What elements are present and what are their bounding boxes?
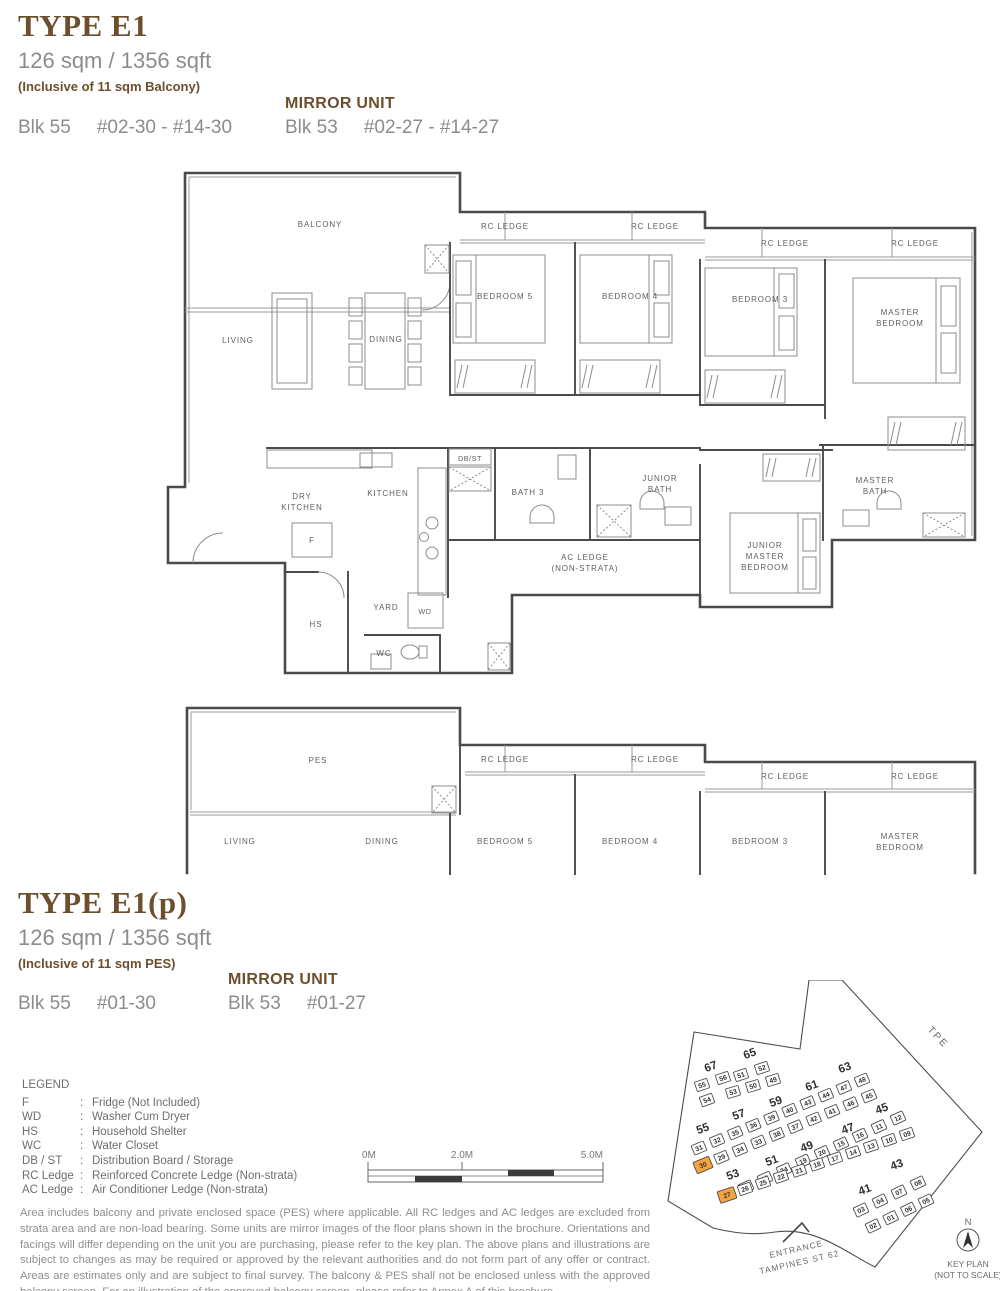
label-master-bedroom: BEDROOM — [876, 843, 924, 852]
plan2-header: TYPE E1(p) 126 sqm / 1356 sqft (Inclusiv… — [18, 885, 211, 971]
keyplan-unit-29: 29 — [714, 1150, 730, 1164]
unit-range: #01-30 — [97, 993, 156, 1015]
keyplan-unit-12: 12 — [890, 1111, 906, 1125]
label-fridge: F — [309, 536, 315, 545]
balcony-window — [185, 308, 450, 312]
plan2-title: TYPE E1(p) — [18, 885, 211, 921]
plan1-header: TYPE E1 126 sqm / 1356 sqft (Inclusive o… — [18, 8, 211, 94]
blk-number: Blk 55 — [18, 993, 71, 1015]
keyplan-unit-01: 01 — [883, 1210, 899, 1225]
label-bedroom3: BEDROOM 3 — [732, 295, 788, 304]
label-yard: YARD — [373, 603, 398, 612]
label-master-bath: MASTER — [856, 476, 895, 485]
keyplan-block-63: 63 — [837, 1060, 853, 1076]
keyplan-unit-22: 22 — [773, 1170, 789, 1184]
keyplan-block-65: 65 — [742, 1046, 759, 1062]
label-rc-ledge: RC LEDGE — [481, 755, 529, 764]
label-junior-bath: BATH — [648, 485, 672, 494]
legend: LEGEND F:Fridge (Not Included) WD:Washer… — [22, 1078, 297, 1198]
label-bedroom5: BEDROOM 5 — [477, 837, 533, 846]
keyplan-unit-03: 03 — [853, 1203, 869, 1218]
keyplan-unit-44: 44 — [818, 1088, 834, 1102]
label-living: LIVING — [222, 336, 254, 345]
label-junior-master: MASTER — [746, 552, 785, 561]
keyplan-unit-55: 55 — [694, 1078, 709, 1092]
keyplan-unit-41: 41 — [824, 1104, 840, 1118]
keyplan-block-61: 61 — [804, 1078, 821, 1094]
keyplan-block-41: 41 — [857, 1182, 874, 1198]
unit-range: #01-27 — [307, 993, 366, 1015]
keyplan-unit-09: 09 — [899, 1127, 915, 1141]
label-rc-ledge: RC LEDGE — [891, 772, 939, 781]
plan2-blk-right: Blk 53 #01-27 — [228, 993, 366, 1015]
keyplan-unit-31: 31 — [691, 1141, 707, 1155]
legend-row: WC:Water Closet — [22, 1139, 297, 1154]
scale-ticks — [368, 1162, 603, 1170]
label-balcony: BALCONY — [298, 220, 343, 229]
keyplan-unit-50: 50 — [745, 1079, 760, 1092]
keyplan-unit-53: 53 — [725, 1085, 740, 1098]
label-bath3: BATH 3 — [512, 488, 545, 497]
label-db-st: DB/ST — [458, 454, 482, 463]
keyplan-unit-47: 47 — [836, 1080, 852, 1094]
plan1-blk-left: Blk 55 #02-30 - #14-30 — [18, 117, 232, 139]
keyplan-unit-07: 07 — [891, 1185, 907, 1200]
keyplan-unit-06: 06 — [900, 1202, 916, 1217]
label-master-bath: BATH — [863, 487, 887, 496]
outer-walls — [187, 708, 975, 873]
keyplan-block-53: 53 — [725, 1167, 741, 1183]
keyplan-unit-39: 39 — [764, 1111, 780, 1125]
keyplan-unit-40: 40 — [782, 1103, 798, 1117]
label-wc: WC — [376, 649, 391, 658]
label-hs: HS — [310, 620, 323, 629]
legend-row: F:Fridge (Not Included) — [22, 1096, 297, 1111]
keyplan-unit-48: 48 — [854, 1073, 870, 1087]
scale-bar: 0M 2.0M 5.0M — [358, 1146, 614, 1190]
label-dry-kitchen: DRY — [292, 492, 311, 501]
wardrobe — [455, 360, 965, 481]
plan1-mirror-label: MIRROR UNIT — [285, 95, 395, 113]
plan1-title: TYPE E1 — [18, 8, 211, 44]
interior-walls — [450, 775, 825, 875]
keyplan-unit-54: 54 — [699, 1093, 715, 1107]
key-plan: TPE 555654515253504931323536394043444748… — [655, 980, 1000, 1290]
keyplan-unit-34: 34 — [732, 1143, 748, 1157]
unit-range: #02-30 - #14-30 — [97, 117, 232, 139]
keyplan-unit-18: 18 — [809, 1158, 825, 1172]
keyplan-unit-46: 46 — [843, 1097, 859, 1111]
keyplan-unit-10: 10 — [881, 1133, 897, 1147]
label-junior-master: BEDROOM — [741, 563, 789, 572]
plan1-note: (Inclusive of 11 sqm Balcony) — [18, 79, 211, 94]
label-junior-master: JUNIOR — [747, 541, 782, 550]
legend-row: WD:Washer Cum Dryer — [22, 1110, 297, 1125]
outer-walls — [168, 173, 975, 673]
disclaimer-text: Area includes balcony and private enclos… — [20, 1206, 650, 1291]
keyplan-unit-36: 36 — [745, 1118, 761, 1132]
plan2-blk-left: Blk 55 #01-30 — [18, 993, 156, 1015]
scale-2m: 2.0M — [451, 1150, 473, 1161]
legend-title: LEGEND — [22, 1078, 297, 1093]
blk-number: Blk 53 — [285, 117, 338, 139]
keyplan-block-59: 59 — [768, 1094, 784, 1110]
plan1-blk-right: Blk 53 #02-27 - #14-27 — [285, 117, 499, 139]
pes-window — [190, 812, 456, 815]
rc-ledge-windows — [460, 212, 975, 260]
keyplan-unit-45: 45 — [861, 1089, 877, 1103]
keyplan-unit-43: 43 — [800, 1096, 816, 1110]
north-label: N — [965, 1217, 972, 1228]
keyplan-unit-42: 42 — [806, 1112, 822, 1126]
scale-dark-segment — [415, 1176, 462, 1182]
label-dining: DINING — [365, 837, 398, 846]
label-bedroom3: BEDROOM 3 — [732, 837, 788, 846]
kitchen-fixtures — [267, 450, 446, 628]
legend-row: RC Ledge:Reinforced Concrete Ledge (Non-… — [22, 1169, 297, 1184]
rc-ledge-windows — [465, 745, 975, 792]
door-arc — [193, 533, 344, 598]
keyplan-unit-38: 38 — [769, 1127, 785, 1141]
plan1-area: 126 sqm / 1356 sqft — [18, 48, 211, 74]
keyplan-block-43: 43 — [889, 1157, 905, 1173]
keyplan-unit-14: 14 — [845, 1145, 861, 1159]
label-ac-ledge: (NON-STRATA) — [552, 564, 619, 573]
label-bedroom4: BEDROOM 4 — [602, 292, 658, 301]
label-junior-bath: JUNIOR — [642, 474, 677, 483]
north-arrow-icon: N — [957, 1217, 979, 1251]
bed-furniture — [453, 255, 960, 593]
keyplan-unit-56: 56 — [715, 1071, 730, 1085]
tpe-road-label: TPE — [925, 1025, 950, 1051]
label-wd: WD — [418, 607, 431, 616]
brochure-page: TYPE E1 126 sqm / 1356 sqft (Inclusive o… — [0, 0, 1000, 1291]
scale-5m: 5.0M — [581, 1150, 603, 1161]
keyplan-unit-35: 35 — [727, 1126, 743, 1140]
label-rc-ledge: RC LEDGE — [761, 772, 809, 781]
label-rc-ledge: RC LEDGE — [481, 222, 529, 231]
keyplan-block-55: 55 — [695, 1121, 712, 1137]
keyplan-unit-30: 30 — [693, 1156, 713, 1174]
label-living: LIVING — [224, 837, 256, 846]
label-dry-kitchen: KITCHEN — [281, 503, 322, 512]
site-boundary — [668, 980, 982, 1267]
unit-range: #02-27 - #14-27 — [364, 117, 499, 139]
label-master-bedroom: MASTER — [881, 308, 920, 317]
label-rc-ledge: RC LEDGE — [631, 755, 679, 764]
keyplan-unit-08: 08 — [910, 1176, 926, 1191]
keyplan-unit-32: 32 — [709, 1133, 725, 1147]
keyplan-unit-49: 49 — [765, 1073, 780, 1086]
keyplan-unit-13: 13 — [863, 1139, 879, 1153]
label-bedroom4: BEDROOM 4 — [602, 837, 658, 846]
keyplan-unit-21: 21 — [791, 1164, 807, 1178]
keyplan-unit-51: 51 — [733, 1068, 748, 1082]
plan2-area: 126 sqm / 1356 sqft — [18, 925, 211, 951]
keyplan-unit-11: 11 — [871, 1119, 887, 1133]
keyplan-block-49: 49 — [799, 1139, 815, 1155]
floorplan-type-e1: BALCONY RC LEDGE RC LEDGE RC LEDGE RC LE… — [160, 165, 980, 685]
plan2-mirror-label: MIRROR UNIT — [228, 971, 338, 989]
plan2-note: (Inclusive of 11 sqm PES) — [18, 956, 211, 971]
legend-row: DB / ST:Distribution Board / Storage — [22, 1154, 297, 1169]
keyplan-block-57: 57 — [731, 1107, 747, 1123]
label-master-bedroom: MASTER — [881, 832, 920, 841]
label-pes: PES — [309, 756, 328, 765]
label-master-bedroom: BEDROOM — [876, 319, 924, 328]
keyplan-caption: (NOT TO SCALE) — [934, 1270, 1000, 1280]
label-dining: DINING — [369, 335, 402, 344]
blk-number: Blk 53 — [228, 993, 281, 1015]
legend-row: HS:Household Shelter — [22, 1125, 297, 1140]
keyplan-block-45: 45 — [874, 1101, 891, 1117]
floorplan-type-e1p: PES RC LEDGE RC LEDGE RC LEDGE RC LEDGE … — [160, 700, 980, 875]
label-ac-ledge: AC LEDGE — [561, 553, 609, 562]
label-kitchen: KITCHEN — [367, 489, 408, 498]
ac-unit-box — [432, 786, 456, 813]
scale-0m: 0M — [362, 1150, 376, 1161]
label-rc-ledge: RC LEDGE — [631, 222, 679, 231]
keyplan-block-67: 67 — [703, 1059, 719, 1075]
label-bedroom5: BEDROOM 5 — [477, 292, 533, 301]
legend-row: AC Ledge:Air Conditioner Ledge (Non-stra… — [22, 1183, 297, 1198]
wall-inner-line — [189, 177, 972, 536]
scale-dark-segment — [508, 1170, 554, 1176]
keyplan-unit-02: 02 — [865, 1219, 881, 1234]
balcony-door-arc — [422, 282, 450, 310]
label-rc-ledge: RC LEDGE — [761, 239, 809, 248]
keyplan-unit-04: 04 — [872, 1194, 888, 1209]
bath-fixtures — [371, 455, 901, 669]
keyplan-unit-27: 27 — [717, 1187, 737, 1204]
blk-number: Blk 55 — [18, 117, 71, 139]
entrance-arrow — [783, 1223, 809, 1242]
label-rc-ledge: RC LEDGE — [891, 239, 939, 248]
keyplan-unit-37: 37 — [787, 1120, 803, 1134]
keyplan-unit-33: 33 — [750, 1135, 766, 1149]
keyplan-unit-52: 52 — [754, 1061, 769, 1075]
keyplan-caption: KEY PLAN — [947, 1259, 988, 1269]
